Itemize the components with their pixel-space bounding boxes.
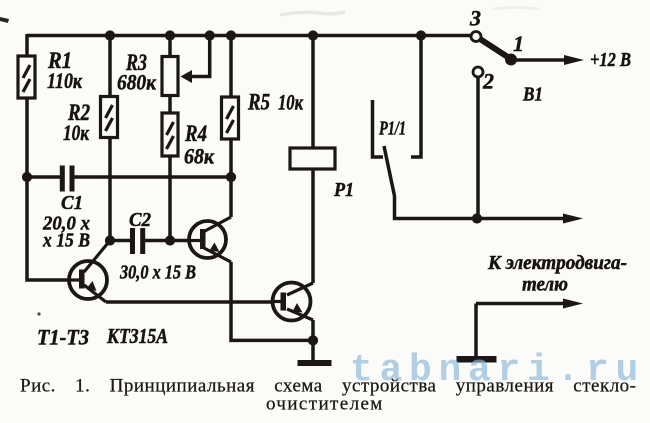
svg-text:110к: 110к <box>47 68 83 93</box>
svg-text:1: 1 <box>513 31 524 56</box>
svg-text:С1: С1 <box>61 192 83 214</box>
svg-text:30,0 х 15 В: 30,0 х 15 В <box>119 262 196 284</box>
svg-text:КТ315А: КТ315А <box>106 324 168 348</box>
svg-text:С2: С2 <box>129 209 151 231</box>
svg-text:R5: R5 <box>247 90 270 115</box>
svg-text:10к: 10к <box>63 120 90 145</box>
svg-text:В1: В1 <box>522 84 543 106</box>
svg-text:R4: R4 <box>184 121 207 146</box>
svg-text:68к: 68к <box>184 144 215 169</box>
svg-text:3: 3 <box>469 6 481 31</box>
svg-text:680к: 680к <box>117 70 157 95</box>
svg-text:+12 В: +12 В <box>590 49 631 71</box>
svg-text:2: 2 <box>482 69 494 94</box>
svg-text:телю: телю <box>522 274 568 296</box>
svg-text:К электродвига-: К электродвига- <box>487 252 627 274</box>
svg-text:tabnari.ru: tabnari.ru <box>350 349 645 392</box>
svg-text:очистителем: очистителем <box>266 394 384 415</box>
svg-text:Р1: Р1 <box>333 179 354 201</box>
svg-text:10к: 10к <box>278 90 304 115</box>
svg-text:Т1-Т3: Т1-Т3 <box>37 325 89 350</box>
svg-text:х 15 В: х 15 В <box>42 230 90 252</box>
svg-text:Р1/1: Р1/1 <box>378 118 406 140</box>
